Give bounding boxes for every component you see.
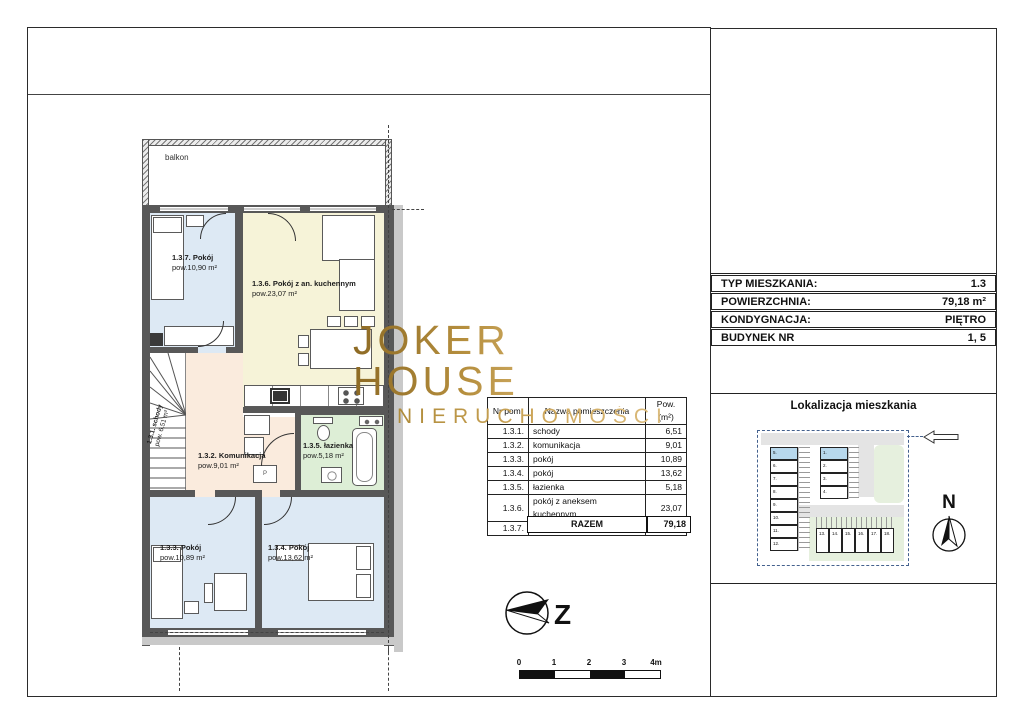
room-name-132: 1.3.2. Komunikacja: [198, 451, 266, 461]
scale-tick-4: 4m: [650, 658, 662, 667]
desk-chair-133: [204, 583, 213, 603]
balcony-railing-top: [142, 139, 392, 146]
sofa-top: [322, 215, 375, 261]
washer: [321, 467, 342, 483]
total-label: RAZEM: [527, 516, 647, 533]
cell-name: pokój: [529, 453, 646, 467]
window-top-2: [244, 207, 300, 211]
scale-tick-2: 2: [587, 658, 591, 667]
entry-road-dash: [907, 436, 923, 437]
room-area-136: pow.23,07 m²: [252, 289, 356, 299]
building-3: 3.: [820, 473, 848, 486]
cell-area: 13,62: [646, 467, 687, 481]
building-6: 6.: [770, 460, 798, 473]
entry-arrow-icon: [923, 430, 959, 444]
building-12: 12.: [770, 538, 798, 551]
parking-middle: [848, 447, 859, 499]
cell-name: łazienka: [529, 481, 646, 495]
centerline-tick-b2: [388, 647, 389, 691]
info-value: 1.3: [971, 278, 986, 290]
cell-nr: 1.3.3.: [488, 453, 529, 467]
building-1: 1.: [820, 447, 848, 460]
building-9: 9.: [770, 499, 798, 512]
building-17: 17.: [868, 528, 881, 553]
building-4: 4.: [820, 486, 848, 499]
toilet-tank: [313, 417, 333, 424]
toilet-bowl: [317, 425, 330, 441]
cell-nr: 1.3.4.: [488, 467, 529, 481]
wall-left: [142, 205, 150, 646]
room-name-136: 1.3.6. Pokój z an. kuchennym: [252, 279, 356, 289]
parking-left: [798, 447, 810, 551]
wall-right-outer: [394, 205, 403, 652]
wall-bedrooms-top-c: [280, 490, 384, 497]
centerline-bottom: [150, 632, 384, 633]
room-area-133: pow.10,89 m²: [160, 553, 205, 563]
agency-logo: JOKER HOUSE NIERUCHOMOŚCI: [353, 320, 673, 427]
room-label-134: 1.3.4. Pokój pow.13,62 m²: [268, 543, 313, 563]
pillow-137: [153, 217, 182, 233]
info-row-area: POWIERZCHNIA: 79,18 m²: [711, 293, 996, 310]
cell-name: komunikacja: [529, 439, 646, 453]
info-value: 1, 5: [968, 332, 986, 344]
cell-area: 5,18: [646, 481, 687, 495]
site-road-horizontal: [798, 505, 904, 517]
building-16: 16.: [855, 528, 868, 553]
info-row-storey: KONDYGNACJA: PIĘTRO: [711, 311, 996, 328]
side-table-133: [184, 601, 199, 614]
total-value: 79,18: [647, 516, 691, 533]
nightstand-137: [186, 215, 204, 227]
building-13: 13.: [816, 528, 829, 553]
building-2: 2.: [820, 460, 848, 473]
table-row: 1.3.4.pokój13,62: [488, 467, 687, 481]
site-road-top: [761, 433, 904, 445]
corridor-wardrobe-1: [244, 415, 270, 435]
pillow-134b: [356, 574, 371, 598]
site-road-vertical: [858, 445, 874, 497]
building-5: 5.: [770, 447, 798, 460]
balcony-label: balkon: [165, 153, 189, 162]
room-name-137: 1.3.7. Pokój: [172, 253, 217, 263]
scale-tick-0: 0: [517, 658, 521, 667]
cell-nr: 1.3.7.: [488, 522, 529, 536]
cell-name: pokój: [529, 467, 646, 481]
room-area-135: pow.5,18 m²: [303, 451, 353, 461]
kitchen-sink: [270, 388, 290, 404]
cell-nr: 1.3.2.: [488, 439, 529, 453]
room-area-134: pow.13,62 m²: [268, 553, 313, 563]
room-label-136: 1.3.6. Pokój z an. kuchennym pow.23,07 m…: [252, 279, 356, 299]
window-top-1: [160, 207, 228, 211]
building-10: 10.: [770, 512, 798, 525]
chair-4: [298, 335, 309, 348]
building-11: 11.: [770, 525, 798, 538]
info-label: BUDYNEK NR: [721, 332, 794, 344]
info-row-type: TYP MIESZKANIA: 1.3: [711, 275, 996, 292]
centerline-tick-right: [392, 209, 424, 210]
panel-top-empty-box: [711, 29, 996, 274]
logo-line1: JOKER HOUSE: [353, 320, 673, 402]
table-row: 1.3.5.łazienka5,18: [488, 481, 687, 495]
header-divider-line: [28, 94, 710, 95]
wall-137-corridor-b: [226, 347, 243, 353]
wall-137-136: [235, 213, 243, 353]
floor-plan-sheet: balkon: [0, 0, 1024, 724]
chair-5: [298, 353, 309, 366]
table-row: 1.3.3.pokój10,89: [488, 453, 687, 467]
table-row: 1.3.2.komunikacja9,01: [488, 439, 687, 453]
room-area-132: pow.9,01 m²: [198, 461, 266, 471]
scale-tick-3: 3: [622, 658, 626, 667]
centerline-tick-b1: [179, 647, 180, 691]
wall-bathroom-left: [295, 415, 301, 490]
plan-north-arrow-icon: Z: [499, 586, 579, 640]
room-label-135: 1.3.5. łazienka pow.5,18 m²: [303, 441, 353, 461]
building-18: 18.: [881, 528, 894, 553]
building-14: 14.: [829, 528, 842, 553]
cell-nr: 1.3.6.: [488, 495, 529, 522]
site-map: 5. 6. 7. 8. 9. 10. 11. 12. 1. 2. 3. 4. 1…: [757, 430, 909, 566]
parking-bottom: [816, 517, 896, 528]
pillow-134a: [356, 546, 371, 570]
room-label-137: 1.3.7. Pokój pow.10,90 m²: [172, 253, 217, 273]
right-panel: TYP MIESZKANIA: 1.3 POWIERZCHNIA: 79,18 …: [710, 28, 997, 697]
logo-line2: NIERUCHOMOŚCI: [353, 406, 673, 427]
desk-133: [214, 573, 247, 611]
info-value: 79,18 m²: [942, 296, 986, 308]
room-label-133: 1.3.3. Pokój pow.10,89 m²: [160, 543, 205, 563]
cell-nr: 1.3.5.: [488, 481, 529, 495]
info-label: POWIERZCHNIA:: [721, 296, 811, 308]
scale-tick-1: 1: [552, 658, 556, 667]
room-name-133: 1.3.3. Pokój: [160, 543, 205, 553]
chair-1: [327, 316, 341, 327]
wall-bedrooms-top-a: [150, 490, 195, 497]
room-area-137: pow.10,90 m²: [172, 263, 217, 273]
info-label: KONDYGNACJA:: [721, 314, 811, 326]
building-7: 7.: [770, 473, 798, 486]
info-value: PIĘTRO: [945, 314, 986, 326]
balcony-railing-left: [142, 139, 149, 206]
site-green-right: [874, 445, 904, 503]
bathtub-inner: [356, 432, 373, 482]
building-8: 8.: [770, 486, 798, 499]
scale-bar: 0 1 2 3 4m: [516, 658, 666, 684]
room-label-132: 1.3.2. Komunikacja pow.9,01 m²: [198, 451, 266, 471]
info-label: TYP MIESZKANIA:: [721, 278, 817, 290]
info-row-building: BUDYNEK NR 1, 5: [711, 329, 996, 346]
wall-bottom-outer: [142, 637, 403, 645]
location-title: Lokalizacja mieszkania: [711, 400, 996, 412]
cell-area: 9,01: [646, 439, 687, 453]
corridor-fill-a: [186, 353, 243, 497]
plan-north-letter: Z: [554, 599, 571, 630]
wall-bedrooms-top-b: [215, 490, 262, 497]
scale-bar-ruler: [519, 670, 661, 679]
shaft-box: [150, 333, 163, 346]
room-name-135: 1.3.5. łazienka: [303, 441, 353, 451]
wall-133-134: [255, 497, 262, 628]
location-box: Lokalizacja mieszkania 5. 6. 7. 8. 9. 10…: [711, 393, 996, 584]
building-15: 15.: [842, 528, 855, 553]
room-name-134: 1.3.4. Pokój: [268, 543, 313, 553]
window-top-3: [310, 207, 376, 211]
location-north-icon: N: [925, 490, 973, 560]
location-north-letter: N: [942, 492, 956, 513]
cell-area: 10,89: [646, 453, 687, 467]
